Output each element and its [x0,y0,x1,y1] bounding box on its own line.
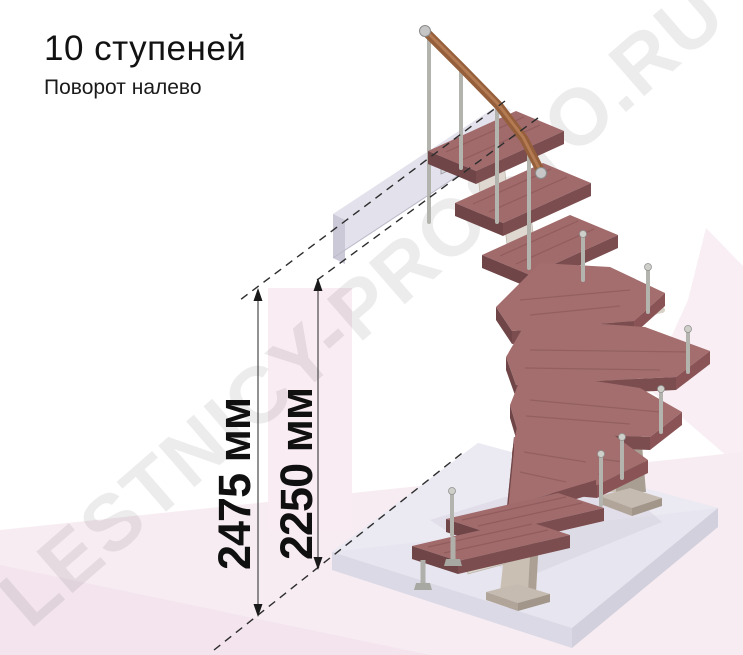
baluster-cap [619,434,626,441]
page-title: 10 ступеней [44,30,246,69]
baluster-cap [645,264,652,271]
baluster-cap [598,451,605,458]
baluster-cap [658,386,665,393]
baluster-cap [685,326,692,333]
arrow-up [254,288,263,301]
baluster-cap [580,231,587,238]
title-block: 10 ступеней Поворот налево [44,30,246,100]
baluster-cap [449,488,456,495]
dimension-floor-to-floor: 2475 мм [209,288,263,617]
handrail-end-cap [536,168,547,179]
dimension-label-2475: 2475 мм [209,398,260,570]
dimension-label-2250: 2250 мм [271,388,322,560]
staircase-diagram-page: LESTNICY-PROSTO.RU [0,0,743,655]
leg-foot [414,583,432,590]
page-subtitle: Поворот налево [44,76,246,100]
handrail-end-cap [420,26,431,37]
leg-foot [444,559,462,566]
